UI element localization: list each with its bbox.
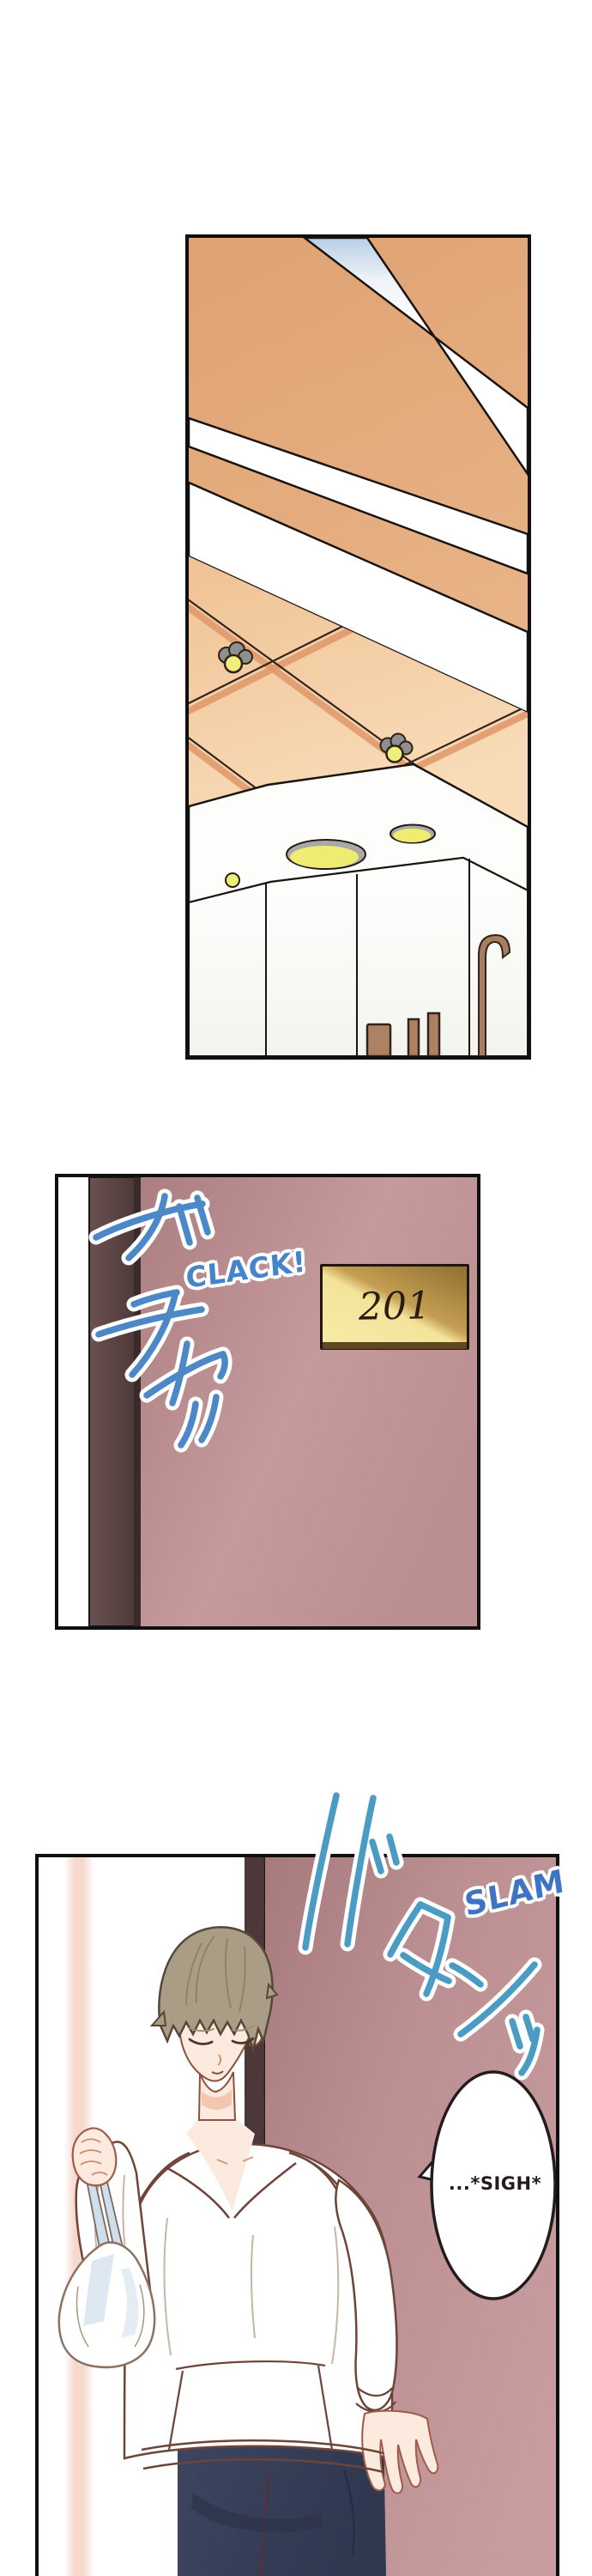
manga-page: 201 CLACK! [0,0,592,2576]
soffit-oval-light-large [287,840,365,869]
soffit-oval-light-medium [390,825,435,843]
room-number: 201 [322,1266,468,1347]
speech-text: ...*SIGH* [435,2173,555,2194]
wall-strip [58,1177,89,1626]
ceiling-art [189,238,528,1056]
door-art [58,1177,477,1626]
soffit-round-light-small [226,873,239,887]
panel-man-at-door: SLAM ...*SIGH* [35,1854,559,2576]
panel-door-201: 201 CLACK! [55,1174,480,1630]
panel-ceiling [185,234,531,1060]
scene-art [39,1857,556,2576]
